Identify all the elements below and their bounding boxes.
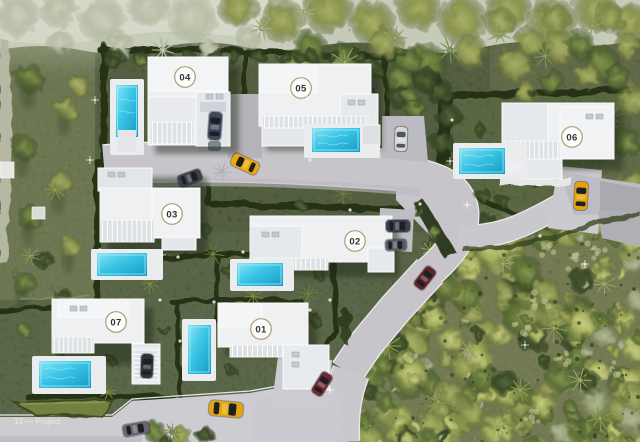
svg-text:01: 01 [255,325,267,336]
svg-text:06: 06 [566,133,577,144]
svg-text:05: 05 [295,84,307,95]
svg-text:07: 07 [110,318,121,329]
svg-text:04: 04 [179,73,191,84]
svg-text:02: 02 [349,237,360,248]
svg-text:03: 03 [166,210,177,221]
svg-text:13 — Project: 13 — Project [14,417,61,426]
